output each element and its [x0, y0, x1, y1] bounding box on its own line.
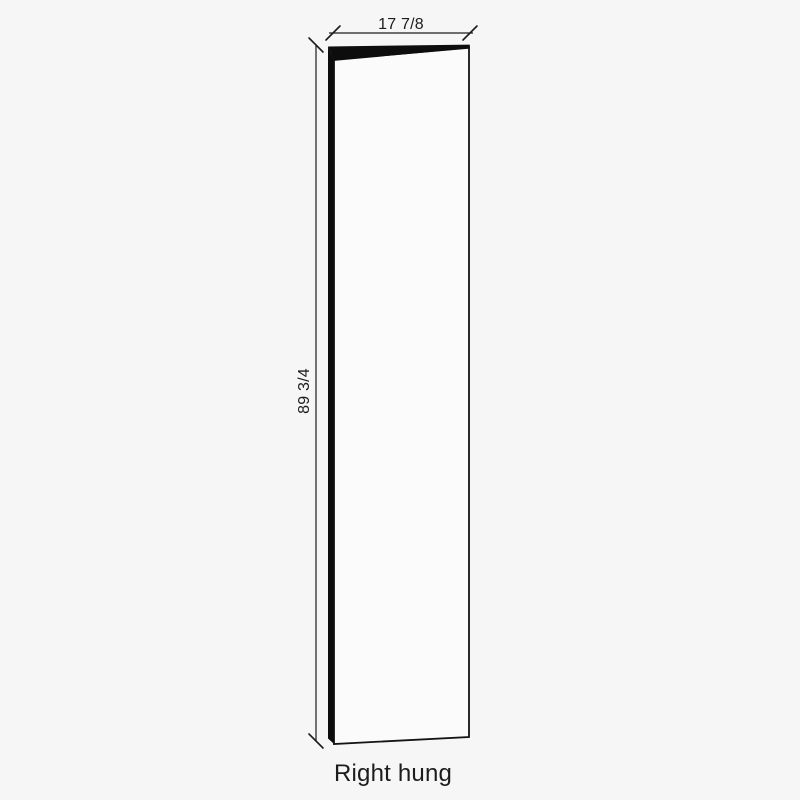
door-panel-face — [334, 48, 469, 745]
width-dimension: 17 7/8 — [326, 16, 477, 40]
door-diagram: 17 7/8 89 3/4 Right hung — [0, 0, 800, 800]
door-diagram-canvas: 17 7/8 89 3/4 Right hung — [0, 0, 800, 800]
door-leading-edge — [328, 47, 334, 744]
hinge-orientation-label: Right hung — [334, 760, 452, 787]
height-dimension: 89 3/4 — [296, 38, 323, 748]
height-dimension-label: 89 3/4 — [296, 368, 313, 414]
width-dimension-label: 17 7/8 — [378, 16, 424, 33]
